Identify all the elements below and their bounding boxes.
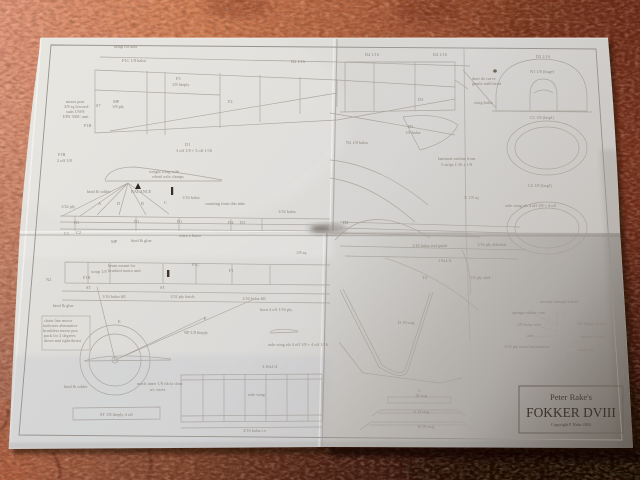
svg-text:ST: ST [86, 285, 91, 290]
svg-text:F1C 1/8 balsa: F1C 1/8 balsa [122, 58, 146, 63]
svg-text:1/16 ply dihedral: 1/16 ply dihedral [477, 242, 507, 247]
svg-text:D2: D2 [240, 220, 245, 225]
svg-text:3.16x1/4: 3.16x1/4 [262, 364, 278, 369]
svg-text:sponge rubber core: sponge rubber core [512, 310, 545, 315]
svg-text:5 strips 1/16 x 1/8: 5 strips 1/16 x 1/8 [441, 162, 472, 167]
svg-text:D1: D1 [177, 219, 182, 224]
svg-text:D2 1/16: D2 1/16 [536, 54, 551, 59]
svg-text:sand core: sand core [578, 347, 594, 352]
svg-text:1/8 balsa: 1/8 balsa [405, 130, 420, 135]
svg-text:laminate outline from: laminate outline from [438, 156, 476, 161]
svg-text:X 1/8 sq: X 1/8 sq [464, 195, 479, 200]
svg-text:D2 1/16: D2 1/16 [291, 59, 306, 64]
svg-text:extra x brace: extra x brace [179, 233, 201, 238]
svg-text:D1: D1 [185, 142, 190, 147]
svg-text:counting from this tube: counting from this tube [205, 201, 245, 206]
svg-text:gentle mild bend: gentle mild bend [472, 81, 502, 86]
svg-text:ST 1/8 liteply 4 off: ST 1/8 liteply 4 off [100, 412, 133, 417]
svg-text:B: B [141, 201, 144, 206]
svg-text:section through wheel: section through wheel [540, 299, 579, 304]
svg-text:1/32 ply hatch: 1/32 ply hatch [170, 294, 195, 299]
svg-text:horn 4 off 1/16 ply: horn 4 off 1/16 ply [260, 307, 293, 312]
svg-text:1/16 balsa fill: 1/16 balsa fill [242, 296, 266, 301]
svg-text:A 14 swg: A 14 swg [413, 409, 430, 414]
svg-text:E: E [204, 316, 207, 321]
svg-text:ST: ST [160, 285, 165, 290]
svg-text:setup for unit: setup for unit [114, 44, 138, 49]
svg-text:1/8 floppy feather: 1/8 floppy feather [577, 321, 608, 326]
svg-text:D4 1/16: D4 1/16 [365, 52, 380, 57]
svg-text:D 18 swg: D 18 swg [398, 320, 415, 325]
svg-text:bind & solder: bind & solder [87, 189, 111, 194]
svg-text:D: D [117, 201, 120, 206]
svg-text:axle wing: axle wing [248, 392, 266, 397]
svg-text:1/16 balsa: 1/16 balsa [182, 195, 200, 200]
svg-text:F1B: F1B [58, 152, 66, 157]
svg-text:Copyright P. Rake 2004: Copyright P. Rake 2004 [551, 422, 592, 427]
svg-text:N2: N2 [46, 277, 51, 282]
svg-text:D3: D3 [408, 124, 413, 129]
svg-text:axle wing rib 4 off 1/8 + 4 of: axle wing rib 4 off 1/8 + 4 off [505, 203, 557, 208]
svg-text:1/8 ply skid: 1/8 ply skid [470, 275, 491, 280]
svg-text:3 off 1/8 + 3 off 1/16: 3 off 1/8 + 3 off 1/16 [176, 148, 213, 153]
svg-text:1/8 liteply: 1/8 liteply [172, 82, 190, 87]
svg-text:bind & solder: bind & solder [64, 384, 88, 389]
svg-text:F1: F1 [229, 268, 234, 273]
svg-text:D4: D4 [343, 220, 349, 225]
svg-text:axle wing rib 4 off 1/8 + 4 of: axle wing rib 4 off 1/8 + 4 off 1/16 [268, 342, 329, 347]
svg-text:T4: T4 [422, 275, 428, 280]
svg-text:1/16 balsa end guide: 1/16 balsa end guide [412, 243, 448, 248]
svg-text:brushed motor unit: brushed motor unit [108, 268, 142, 273]
svg-text:1/8 sq: 1/8 sq [296, 250, 307, 255]
svg-text:D1: D1 [134, 219, 139, 224]
svg-text:D4 1/16: D4 1/16 [433, 52, 448, 57]
svg-text:down and right thrust: down and right thrust [44, 338, 82, 343]
svg-text:C: C [164, 200, 167, 205]
svg-text:N2 1/8 balsa: N2 1/8 balsa [346, 140, 368, 145]
svg-text:axle: axle [527, 333, 534, 338]
svg-text:C2: C2 [76, 230, 81, 235]
svg-text:scrap 1/8: scrap 1/8 [91, 269, 107, 274]
svg-text:MP: MP [111, 239, 118, 244]
svg-text:EPS 300C unit: EPS 300C unit [63, 114, 89, 119]
svg-text:BALANCE: BALANCE [131, 189, 152, 194]
svg-text:bind & glue: bind & glue [131, 238, 152, 243]
svg-text:C1: C1 [64, 231, 69, 236]
svg-text:NP 1/8 liteply: NP 1/8 liteply [184, 330, 209, 335]
svg-text:F2: F2 [228, 99, 233, 104]
svg-text:B 18 swg: B 18 swg [418, 424, 435, 429]
svg-text:1/16 balsa fill: 1/16 balsa fill [102, 294, 126, 299]
svg-text:F1B: F1B [83, 275, 91, 280]
svg-text:E: E [118, 319, 121, 324]
svg-text:3/16 balsa t.e.: 3/16 balsa t.e. [243, 428, 267, 433]
svg-text:a/c wires: a/c wires [150, 387, 166, 392]
svg-text:1/32 balsa: 1/32 balsa [278, 209, 296, 214]
svg-text:D3: D3 [418, 97, 423, 102]
svg-text:D1: D1 [74, 220, 79, 225]
svg-text:F1B: F1B [84, 123, 92, 128]
svg-text:1/32 ply outer laminations: 1/32 ply outer laminations [504, 344, 550, 349]
svg-text:F1C: F1C [192, 262, 200, 267]
svg-text:C1 1/8 (laspl): C1 1/8 (laspl) [530, 115, 554, 120]
svg-text:twisted washer: twisted washer [581, 334, 607, 339]
svg-text:18 swg: 18 swg [415, 393, 428, 398]
svg-text:Peter Rake's: Peter Rake's [550, 392, 592, 402]
svg-text:1/32 ply: 1/32 ply [61, 204, 76, 209]
svg-text:C2 1/8 (laspl): C2 1/8 (laspl) [528, 183, 552, 188]
svg-text:N1 1/8 (huge): N1 1/8 (huge) [530, 69, 555, 74]
svg-text:wheel axle clamps: wheel axle clamps [152, 174, 184, 179]
svg-text:FOKKER DVIII: FOKKER DVIII [526, 405, 616, 420]
svg-text:D4: D4 [228, 220, 234, 225]
svg-text:notch inner 1/8 rib to clear: notch inner 1/8 rib to clear [137, 381, 183, 386]
svg-text:wing balsa: wing balsa [474, 100, 493, 105]
svg-text:bind & glue: bind & glue [53, 303, 74, 308]
svg-text:1/8 ply: 1/8 ply [112, 104, 125, 109]
svg-text:1/8 balsa core: 1/8 balsa core [517, 322, 541, 327]
svg-text:2 off 1/8: 2 off 1/8 [57, 158, 72, 163]
svg-text:1 9x1/4: 1 9x1/4 [438, 258, 452, 263]
svg-text:F3: F3 [176, 76, 181, 81]
